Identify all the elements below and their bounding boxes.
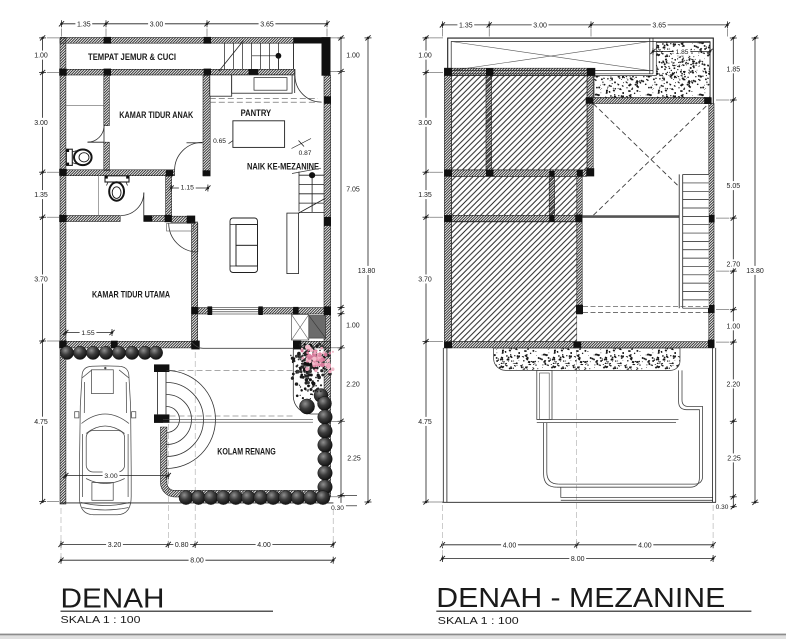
svg-text:3.00: 3.00: [533, 22, 547, 29]
svg-text:1.00: 1.00: [726, 323, 740, 330]
svg-text:0.65: 0.65: [213, 138, 226, 145]
svg-text:3.00: 3.00: [150, 21, 164, 28]
svg-text:4.75: 4.75: [34, 419, 48, 426]
svg-text:4.00: 4.00: [503, 542, 517, 549]
svg-text:13.80: 13.80: [358, 268, 376, 275]
svg-text:3.65: 3.65: [260, 21, 274, 28]
svg-text:PANTRY: PANTRY: [241, 108, 272, 118]
svg-text:3.00: 3.00: [418, 120, 432, 127]
svg-text:8.00: 8.00: [190, 558, 204, 565]
svg-text:1.00: 1.00: [34, 53, 48, 60]
svg-text:SKALA 1 : 100: SKALA 1 : 100: [438, 615, 519, 627]
svg-text:3.70: 3.70: [34, 277, 48, 284]
svg-text:2.20: 2.20: [726, 382, 740, 389]
svg-text:1.35: 1.35: [459, 22, 473, 29]
svg-text:3.70: 3.70: [418, 277, 432, 284]
svg-text:3.20: 3.20: [108, 542, 122, 549]
svg-text:3.65: 3.65: [652, 22, 666, 29]
svg-text:SKALA 1 : 100: SKALA 1 : 100: [61, 614, 141, 626]
svg-text:8.00: 8.00: [571, 556, 585, 563]
svg-text:NAIK KE-MEZANINE: NAIK KE-MEZANINE: [247, 161, 319, 171]
svg-text:1.35: 1.35: [77, 21, 91, 28]
svg-text:1.35: 1.35: [418, 192, 432, 199]
svg-text:1.35: 1.35: [34, 192, 48, 199]
svg-text:4.00: 4.00: [257, 542, 271, 549]
svg-text:2.70: 2.70: [726, 261, 740, 268]
svg-text:2.25: 2.25: [347, 456, 361, 463]
svg-text:1.00: 1.00: [346, 53, 360, 60]
svg-text:3.00: 3.00: [104, 473, 117, 480]
svg-text:1.15: 1.15: [181, 185, 194, 192]
svg-text:4.75: 4.75: [418, 419, 432, 426]
svg-text:0.80: 0.80: [175, 542, 189, 549]
svg-text:7.05: 7.05: [346, 187, 360, 194]
svg-text:2.25: 2.25: [727, 456, 741, 463]
svg-text:DENAH: DENAH: [61, 583, 165, 614]
svg-text:TEMPAT JEMUR & CUCI: TEMPAT JEMUR & CUCI: [88, 52, 176, 62]
svg-text:13.80: 13.80: [746, 268, 764, 275]
svg-text:1.00: 1.00: [418, 53, 432, 60]
svg-text:3.00: 3.00: [34, 120, 48, 127]
svg-text:DENAH - MEZANINE: DENAH - MEZANINE: [436, 582, 725, 613]
svg-text:0.30: 0.30: [716, 504, 729, 511]
svg-text:5.05: 5.05: [726, 183, 740, 190]
svg-text:KAMAR TIDUR UTAMA: KAMAR TIDUR UTAMA: [92, 290, 170, 300]
svg-text:KOLAM RENANG: KOLAM RENANG: [217, 447, 276, 457]
svg-text:1.85: 1.85: [676, 49, 689, 56]
svg-text:1.55: 1.55: [81, 330, 94, 337]
svg-text:0.87: 0.87: [299, 150, 312, 157]
svg-text:2.20: 2.20: [346, 382, 360, 389]
svg-text:4.00: 4.00: [638, 542, 652, 549]
svg-text:1.00: 1.00: [346, 323, 360, 330]
svg-text:KAMAR TIDUR ANAK: KAMAR TIDUR ANAK: [119, 110, 193, 120]
svg-text:1.85: 1.85: [726, 66, 740, 73]
